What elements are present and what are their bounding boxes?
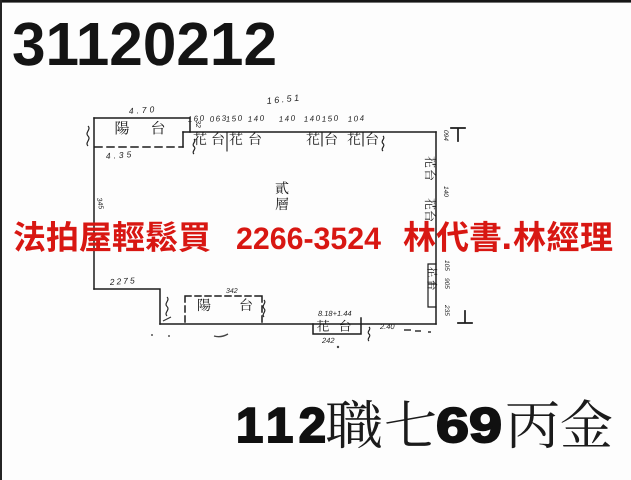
svg-text:105: 105 (443, 260, 450, 271)
svg-text:150: 150 (225, 113, 244, 124)
svg-text:4.35: 4.35 (105, 149, 134, 161)
svg-text:342: 342 (226, 288, 238, 295)
svg-text:32: 32 (194, 120, 201, 128)
svg-text:140: 140 (278, 113, 297, 124)
svg-text:2.40: 2.40 (379, 322, 395, 331)
svg-text:140: 140 (442, 186, 449, 197)
svg-text:094: 094 (442, 130, 449, 141)
svg-text:150: 150 (321, 113, 340, 124)
svg-text:2275: 2275 (108, 275, 137, 287)
svg-text:2266-3524: 2266-3524 (236, 221, 382, 256)
svg-text:140: 140 (303, 113, 322, 124)
svg-text:905: 905 (443, 278, 450, 289)
svg-text:140: 140 (247, 113, 266, 124)
svg-text:8.18+1.44: 8.18+1.44 (318, 309, 352, 318)
svg-text:4.70: 4.70 (128, 104, 157, 116)
svg-text:31120212: 31120212 (12, 10, 277, 78)
svg-text:112: 112 (236, 399, 332, 453)
svg-text:104: 104 (347, 113, 366, 124)
svg-text:242: 242 (321, 336, 335, 345)
svg-text:69: 69 (436, 399, 502, 453)
svg-text:235: 235 (443, 304, 450, 316)
